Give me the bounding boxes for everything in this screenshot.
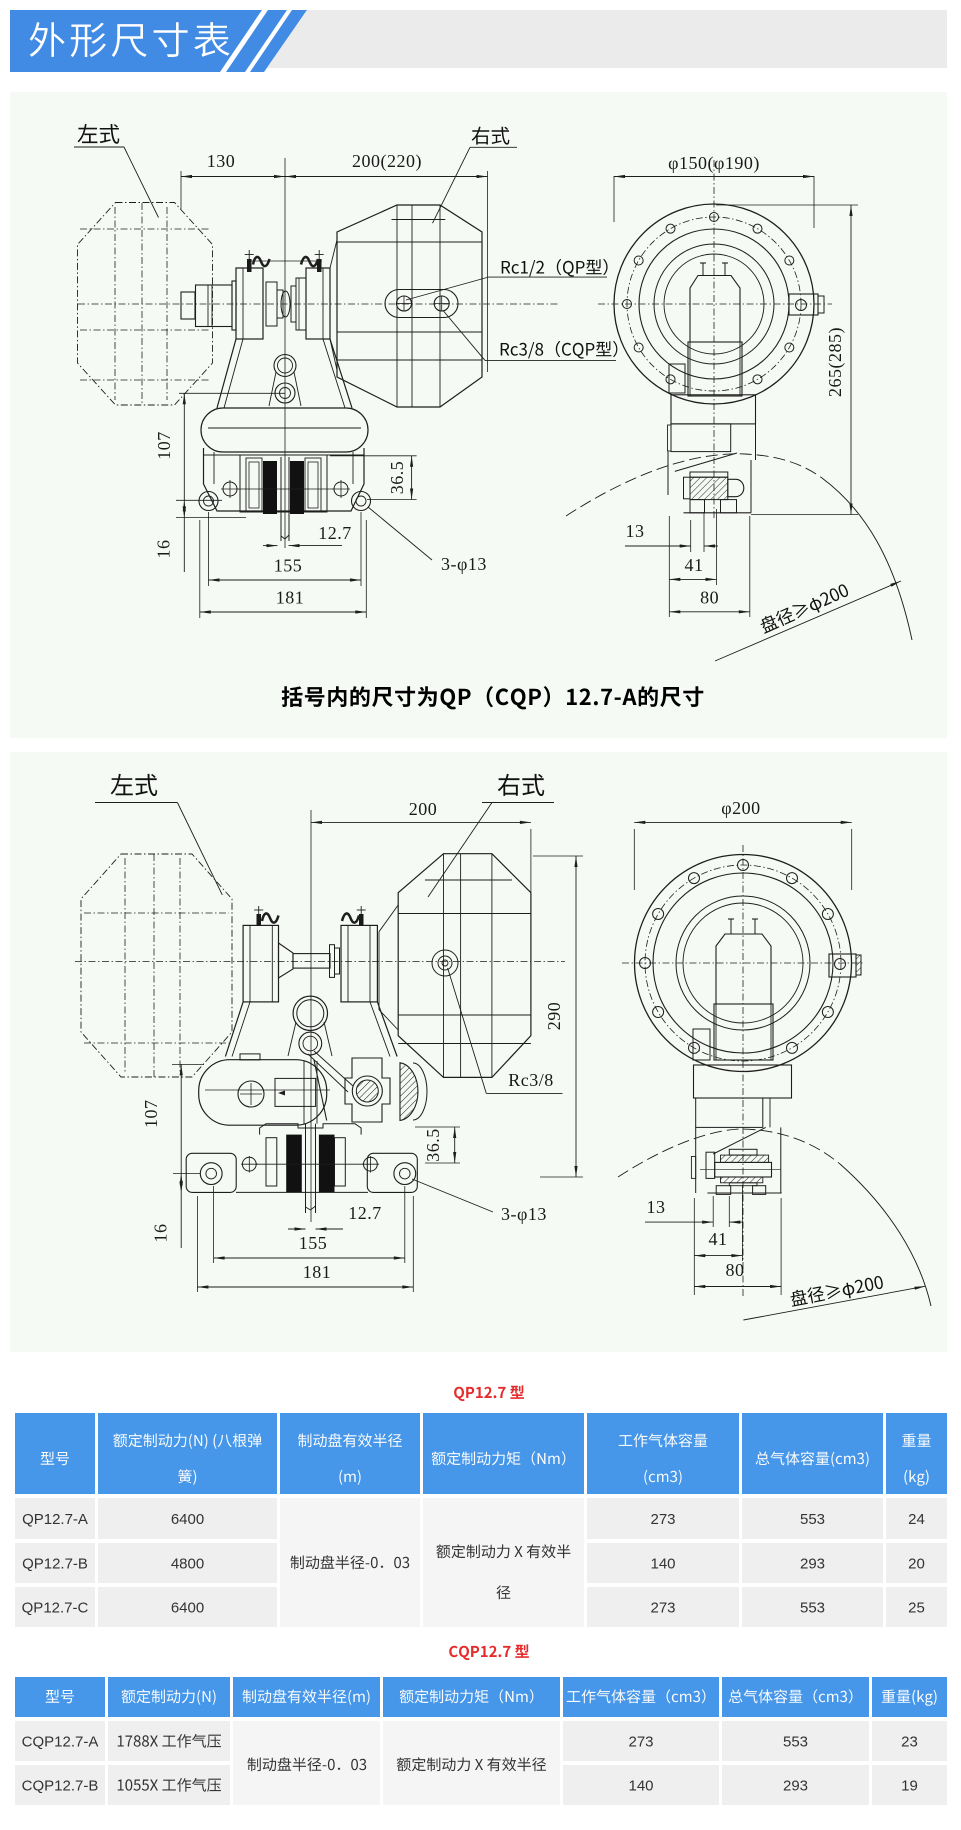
- svg-text:553: 553: [800, 1600, 825, 1617]
- svg-text:181: 181: [303, 1262, 332, 1282]
- svg-text:293: 293: [783, 1778, 808, 1795]
- svg-text:13: 13: [626, 521, 645, 541]
- svg-text:107: 107: [141, 1099, 161, 1128]
- svg-text:3-φ13: 3-φ13: [441, 554, 487, 574]
- svg-text:QP12.7-C: QP12.7-C: [22, 1600, 89, 1617]
- svg-text:20: 20: [908, 1556, 925, 1573]
- svg-text:130: 130: [207, 151, 236, 171]
- svg-text:25: 25: [908, 1600, 925, 1617]
- svg-text:Rc3/8: Rc3/8: [508, 1070, 554, 1090]
- svg-text:φ200: φ200: [721, 798, 760, 818]
- svg-text:553: 553: [783, 1734, 808, 1751]
- svg-text:23: 23: [901, 1734, 918, 1751]
- svg-text:273: 273: [650, 1511, 675, 1528]
- svg-text:CQP12.7-A: CQP12.7-A: [22, 1734, 99, 1751]
- svg-text:CQP12.7-B: CQP12.7-B: [22, 1778, 99, 1795]
- svg-text:41: 41: [685, 555, 704, 575]
- svg-text:6400: 6400: [171, 1511, 204, 1528]
- svg-text:200: 200: [409, 799, 438, 819]
- svg-text:265(285): 265(285): [825, 327, 846, 397]
- svg-text:12.7: 12.7: [348, 1203, 382, 1223]
- svg-text:155: 155: [299, 1233, 328, 1253]
- svg-text:140: 140: [628, 1778, 653, 1795]
- svg-text:12.7: 12.7: [318, 523, 352, 543]
- svg-text:273: 273: [650, 1600, 675, 1617]
- svg-text:41: 41: [709, 1229, 728, 1249]
- svg-text:293: 293: [800, 1556, 825, 1573]
- svg-text:4800: 4800: [171, 1556, 204, 1573]
- svg-text:553: 553: [800, 1511, 825, 1528]
- svg-text:16: 16: [154, 540, 174, 559]
- svg-text:290: 290: [544, 1002, 564, 1031]
- svg-text:36.5: 36.5: [423, 1128, 443, 1162]
- svg-text:3-φ13: 3-φ13: [501, 1204, 547, 1224]
- svg-text:36.5: 36.5: [387, 461, 407, 495]
- svg-text:273: 273: [628, 1734, 653, 1751]
- svg-text:6400: 6400: [171, 1600, 204, 1617]
- svg-text:200(220): 200(220): [352, 151, 422, 172]
- svg-text:QP12.7-B: QP12.7-B: [22, 1556, 88, 1573]
- svg-text:φ150(φ190): φ150(φ190): [668, 153, 760, 174]
- svg-text:24: 24: [908, 1511, 925, 1528]
- svg-text:QP12.7-A: QP12.7-A: [22, 1511, 88, 1528]
- svg-text:80: 80: [700, 588, 719, 608]
- svg-text:13: 13: [647, 1197, 666, 1217]
- svg-text:107: 107: [154, 431, 174, 460]
- svg-text:140: 140: [650, 1556, 675, 1573]
- svg-text:19: 19: [901, 1778, 918, 1795]
- svg-text:181: 181: [276, 588, 305, 608]
- svg-text:16: 16: [151, 1224, 171, 1243]
- svg-text:80: 80: [726, 1260, 745, 1280]
- svg-text:155: 155: [274, 556, 303, 576]
